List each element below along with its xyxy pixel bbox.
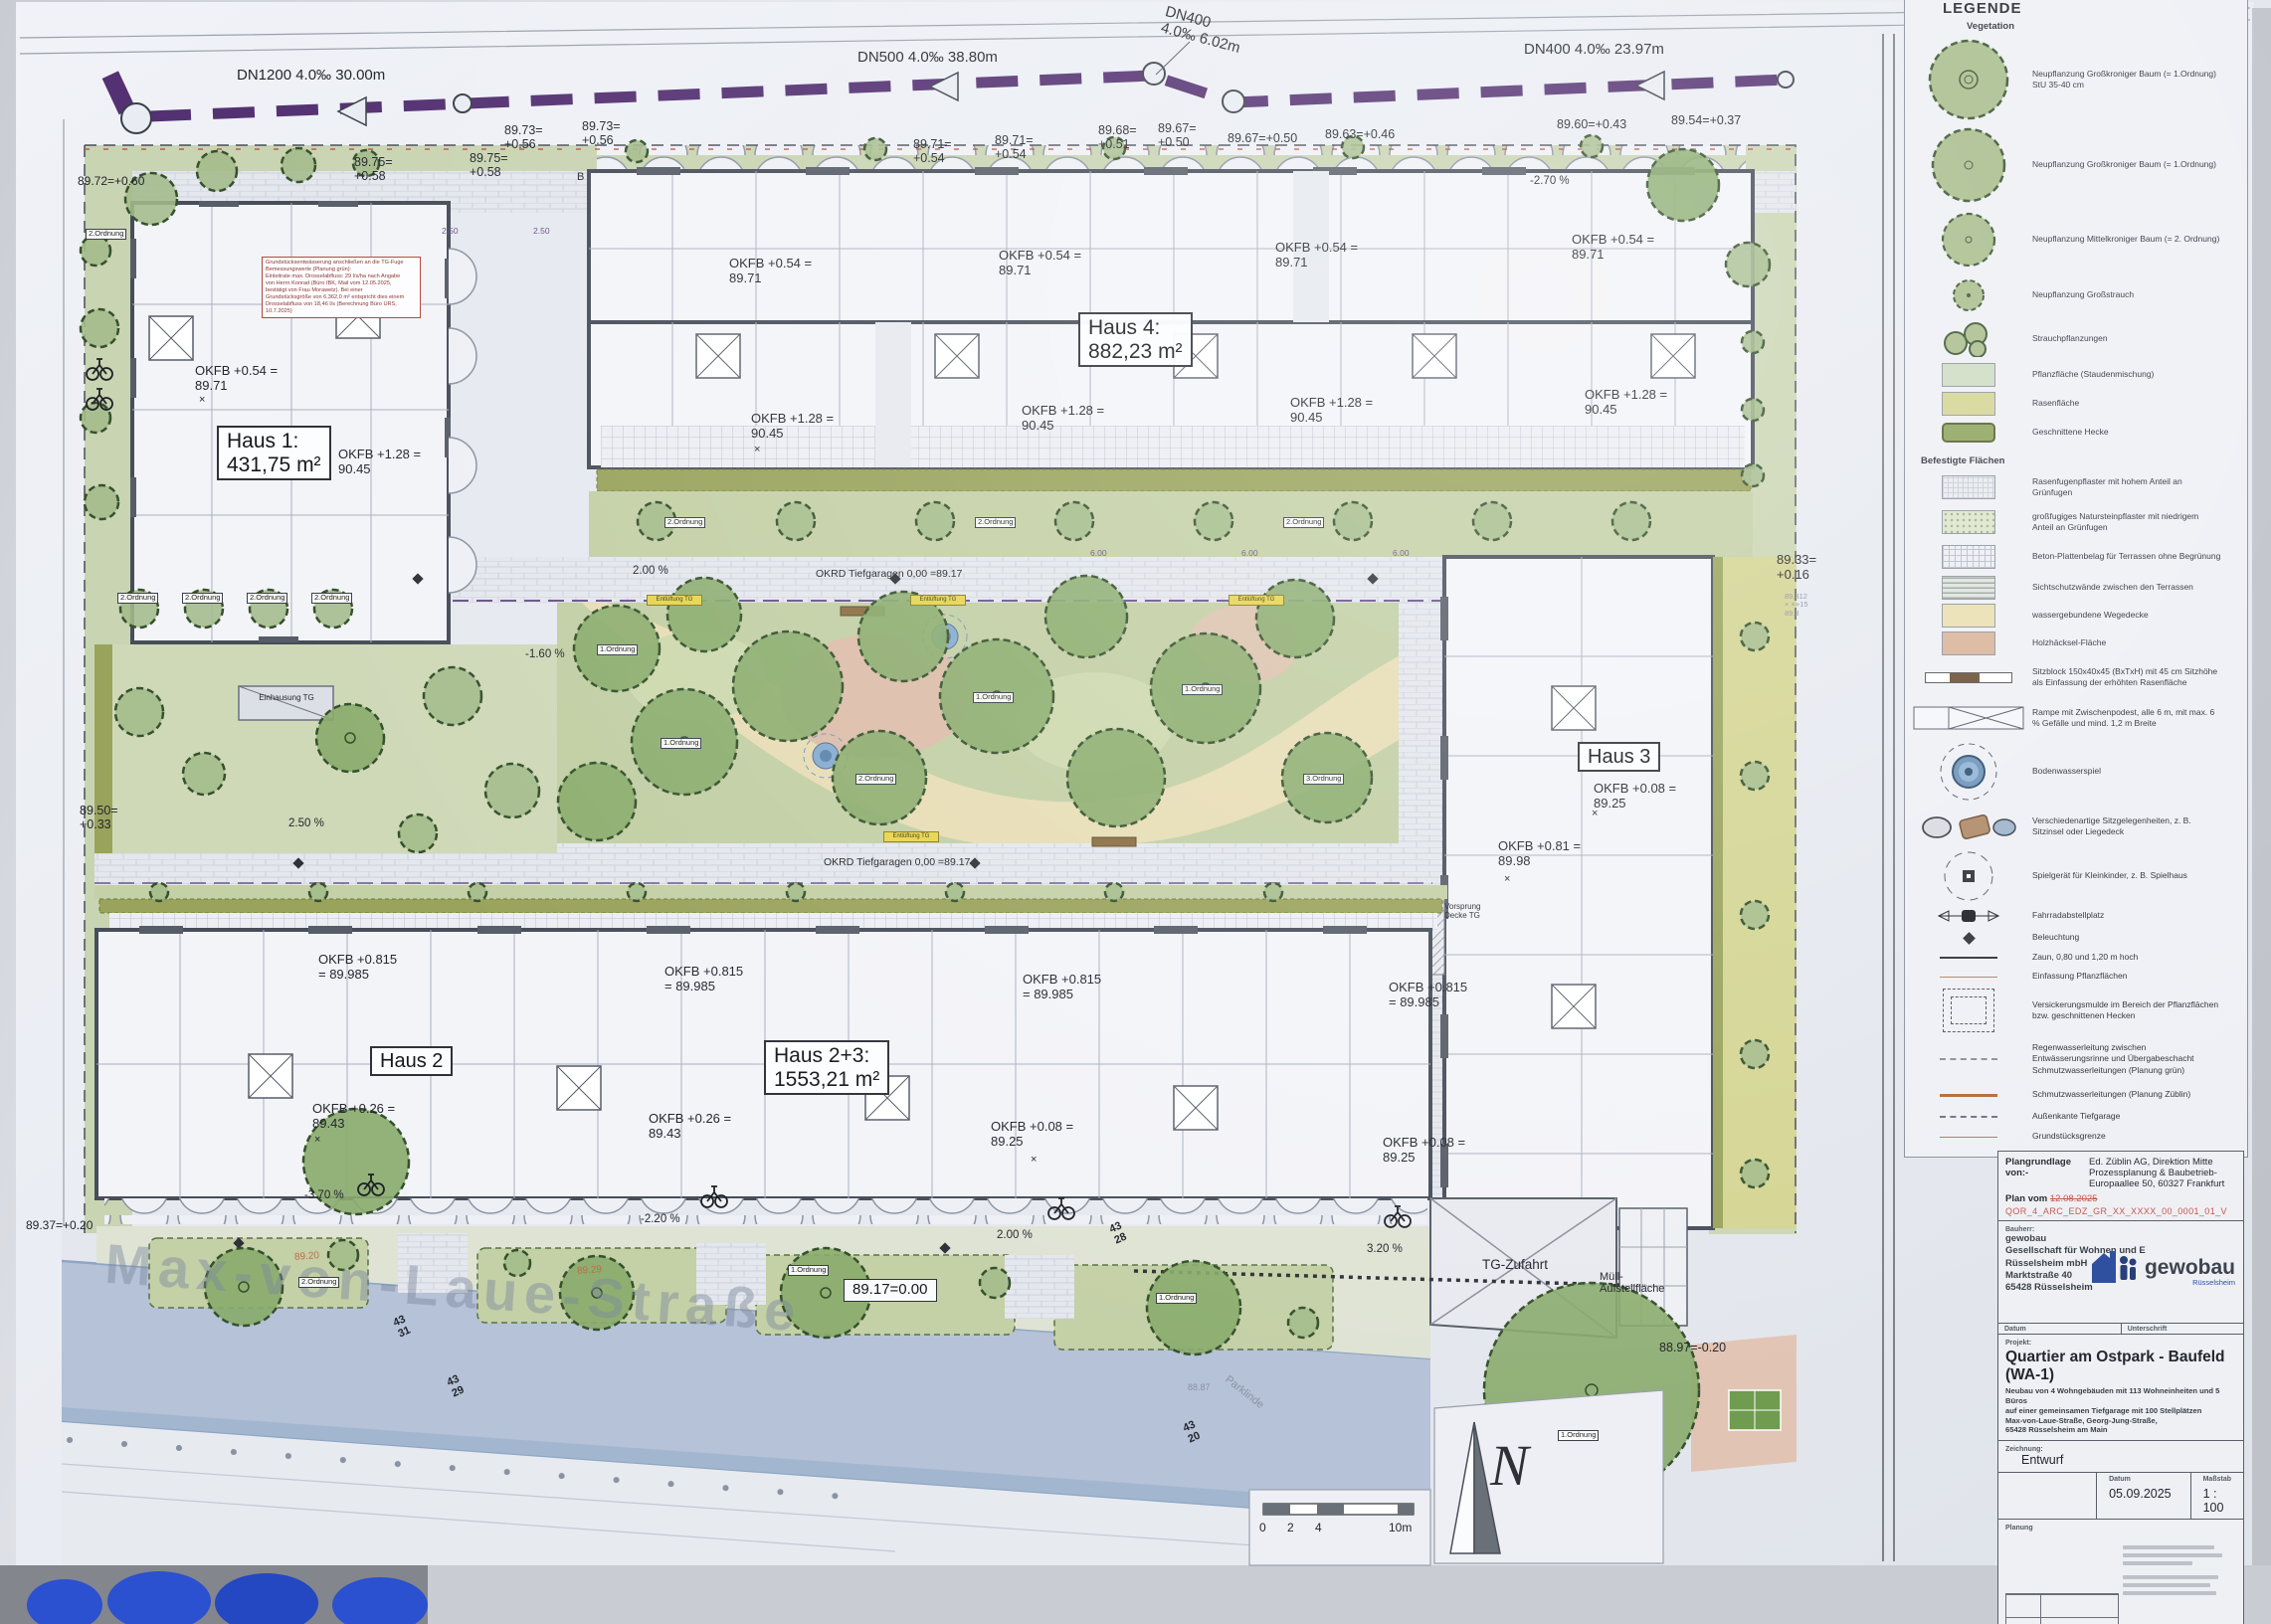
- photographed-site-plan: DN1200 4.0‰ 30.00m DN500 4.0‰ 38.80m DN4…: [0, 0, 2271, 1624]
- legend-item: Strauchpflanzungen: [1905, 318, 2247, 360]
- okfb-label: OKFB +0.54 = 89.71: [1572, 233, 1654, 262]
- versickerung-icon: [1905, 989, 2032, 1032]
- legend-item: Grundstücksgrenze: [1905, 1127, 2247, 1147]
- bauherr-label: Bauherr:: [2005, 1226, 2236, 1233]
- survey-x-mark: ×: [199, 394, 205, 406]
- elevation-label: 89.73= +0.56: [504, 123, 543, 151]
- survey-x-mark: ×: [1592, 808, 1598, 819]
- okfb-label: OKFB +0.54 = 89.71: [729, 257, 812, 285]
- haus2-label: Haus 2: [370, 1046, 453, 1076]
- tg-vent-label: Entlüftung TG: [883, 831, 939, 842]
- survey-x-mark: ×: [1031, 1154, 1037, 1166]
- platten-swatch: [1905, 545, 2032, 569]
- dimension-label: 6.00: [1393, 549, 1410, 559]
- legend-label: Bodenwasserspiel: [2032, 766, 2221, 777]
- legend-label: großfugiges Natursteinpflaster mit niedr…: [2032, 511, 2221, 533]
- slope-label: 2.00 %: [997, 1229, 1033, 1242]
- north-arrow: [1434, 1390, 1663, 1563]
- einfassung-line: [1905, 977, 2032, 978]
- dimension-label: 2.50: [533, 227, 550, 237]
- plan-vom-label: Plan vom: [2005, 1193, 2047, 1204]
- street-elevation-point: 89.29: [577, 1264, 603, 1277]
- elevation-label: 89.54=+0.37: [1671, 113, 1741, 127]
- elevation-label: 89.37=+0.20: [26, 1219, 93, 1232]
- legend-item: Rampe mit Zwischenpodest, alle 6 m, mit …: [1905, 697, 2247, 739]
- pipe-label-dn500: DN500 4.0‰ 38.80m: [857, 50, 998, 67]
- legend-label: Neupflanzung Großkroniger Baum (= 1.Ordn…: [2032, 69, 2221, 90]
- elevation-label: 89.75= +0.58: [470, 151, 508, 179]
- legend-label: Strauchpflanzungen: [2032, 333, 2221, 344]
- tree-xl-icon: [1905, 37, 2032, 122]
- elevation-label: 89.63=+0.46: [1325, 127, 1395, 141]
- legend-section-vegetation: Vegetation: [1967, 21, 2247, 32]
- massstab-value: 1 : 100: [2197, 1485, 2237, 1517]
- legend-label: Sitzblock 150x40x45 (BxTxH) mit 45 cm Si…: [2032, 666, 2221, 688]
- tree-order-tag: 1.Ordnung: [1558, 1430, 1599, 1441]
- holz-swatch: [1905, 632, 2032, 655]
- legend-label: Neupflanzung Großkroniger Baum (= 1.Ordn…: [2032, 159, 2221, 170]
- okfb-label: OKFB +1.28 = 90.45: [1585, 388, 1667, 417]
- legend-label: Außenkante Tiefgarage: [2032, 1111, 2221, 1122]
- legend-item: Beleuchtung: [1905, 928, 2247, 948]
- okfb-label: OKFB +1.28 = 90.45: [1290, 396, 1373, 425]
- haus23-label: Haus 2+3: 1553,21 m²: [764, 1040, 889, 1095]
- gewobau-logo: gewobau Rüsselsheim: [2089, 1247, 2235, 1287]
- okfb-label: OKFB +0.815 = 89.985: [1023, 973, 1101, 1001]
- okfb-label: OKFB +0.54 = 89.71: [999, 249, 1081, 277]
- wegedecke-swatch: [1905, 604, 2032, 628]
- legend-item: Neupflanzung Großkroniger Baum (= 1.Ordn…: [1905, 36, 2247, 123]
- street-elevation-point: 88.87: [1188, 1382, 1211, 1392]
- legend-label: Spielgerät für Kleinkinder, z. B. Spielh…: [2032, 870, 2221, 881]
- okfb-label: OKFB +0.26 = 89.43: [312, 1102, 395, 1131]
- legend-item: Verschiedenartige Sitzgelegenheiten, z. …: [1905, 805, 2247, 848]
- tg-vent-label: Entlüftung TG: [647, 595, 702, 606]
- plan-vom-date: 12.08.2025: [2050, 1193, 2098, 1204]
- pipe-label-dn1200: DN1200 4.0‰ 30.00m: [237, 68, 385, 85]
- survey-x-mark: ×: [1504, 873, 1510, 885]
- legend-label: Rasenfläche: [2032, 398, 2221, 409]
- slope-label: 2.50 %: [288, 817, 324, 830]
- elevation-label: 89.71= +0.54: [995, 133, 1034, 161]
- legend-item: Versickerungsmulde im Bereich der Pflanz…: [1905, 986, 2247, 1035]
- scale-tick-4: 4: [1315, 1522, 1322, 1534]
- hecke-swatch: [1905, 423, 2032, 443]
- okrd-label: OKRD Tiefgaragen 0,00 =89.17: [824, 857, 970, 869]
- title-block: Plangrundlage von:- Ed. Züblin AG, Direk…: [1997, 1152, 2244, 1624]
- legend-label: Verschiedenartige Sitzgelegenheiten, z. …: [2032, 815, 2221, 837]
- projekt-label: Projekt:: [2005, 1340, 2236, 1347]
- section-marker: B: [577, 171, 584, 183]
- schmutzwasser-line: [1905, 1094, 2032, 1097]
- rasen-swatch: [1905, 392, 2032, 416]
- legend-item: Rasenfugenpflaster mit hohem Anteil an G…: [1905, 470, 2247, 504]
- legend-label: Rasenfugenpflaster mit hohem Anteil an G…: [2032, 476, 2221, 498]
- project-title: Quartier am Ostpark - Baufeld (WA-1): [2005, 1349, 2236, 1384]
- okfb-label: OKFB +0.81 = 89.98: [1498, 839, 1581, 868]
- okrd-label: OKRD Tiefgaragen 0,00 =89.17: [816, 569, 962, 581]
- legend-item: Pflanzfläche (Staudenmischung): [1905, 360, 2247, 390]
- titleblock-planung: Planung grün: [1997, 1519, 2244, 1624]
- sichtschutz-swatch: [1905, 576, 2032, 600]
- vorsprung-label: Vorsprung Decke TG: [1444, 903, 1480, 921]
- legend-item: Regenwasserleitung zwischen Entwässerung…: [1905, 1035, 2247, 1083]
- legend-item: großfugiges Natursteinpflaster mit niedr…: [1905, 504, 2247, 540]
- tg-zufahrt-label: TG-Zufahrt: [1482, 1257, 1548, 1272]
- gewobau-city: Rüsselsheim: [2145, 1278, 2235, 1287]
- photo-bottom-strip: [0, 1565, 2271, 1624]
- legend-item: Sitzblock 150x40x45 (BxTxH) mit 45 cm Si…: [1905, 657, 2247, 697]
- legend-item: Einfassung Pflanzflächen: [1905, 968, 2247, 986]
- legend-item: Spielgerät für Kleinkinder, z. B. Spielh…: [1905, 848, 2247, 904]
- tree-m-icon: [1905, 210, 2032, 270]
- scale-tick-0: 0: [1259, 1522, 1266, 1534]
- legend-item: Sichtschutzwände zwischen den Terrassen: [1905, 574, 2247, 602]
- north-letter: N: [1490, 1434, 1529, 1499]
- legend-item: Neupflanzung Großkroniger Baum (= 1.Ordn…: [1905, 123, 2247, 207]
- slope-label: 2.00 %: [633, 565, 668, 578]
- shrubs-icon: [1905, 321, 2032, 357]
- slope-label: -3.70 %: [304, 1189, 344, 1202]
- dimension-label: 6.00: [1090, 549, 1107, 559]
- legend-item: Außenkante Tiefgarage: [1905, 1107, 2247, 1127]
- legend-item: Schmutzwasserleitungen (Planung Züblin): [1905, 1083, 2247, 1107]
- beleuchtung-icon: [1905, 934, 2032, 943]
- drainage-note: Grundstücksentwässerung anschließen an d…: [262, 257, 421, 318]
- zeichnung-label: Zeichnung:: [2005, 1446, 2236, 1453]
- legend-item: Bodenwasserspiel: [1905, 739, 2247, 805]
- slope-label: -1.60 %: [525, 648, 565, 661]
- project-description: Neubau von 4 Wohngebäuden mit 113 Wohnei…: [2005, 1386, 2236, 1435]
- legend-label: Beton-Plattenbelag für Terrassen ohne Be…: [2032, 551, 2221, 562]
- titleblock-bauherr: Bauherr: gewobau Gesellschaft für Wohnen…: [1997, 1220, 2244, 1324]
- legend-label: Zaun, 0,80 und 1,20 m hoch: [2032, 952, 2221, 963]
- okfb-label: OKFB +1.28 = 90.45: [338, 448, 421, 476]
- gewobau-wordmark: gewobau: [2145, 1259, 2235, 1278]
- survey-x-mark: ×: [754, 444, 760, 455]
- legend-label: Holzhäcksel-Fläche: [2032, 637, 2221, 648]
- zeichnung-value: Entwurf: [2021, 1453, 2236, 1467]
- tg-vent-label: Entlüftung TG: [1229, 595, 1284, 606]
- okfb-label: OKFB +0.08 = 89.25: [1383, 1136, 1465, 1165]
- okfb-label: OKFB +1.28 = 90.45: [1022, 404, 1104, 433]
- tree-order-tag: 2.Ordnung: [311, 593, 352, 604]
- slope-label: 3.20 %: [1367, 1243, 1403, 1256]
- legend-label: Pflanzfläche (Staudenmischung): [2032, 369, 2221, 380]
- elevation-label: 89.71= +0.54: [913, 137, 952, 165]
- titleblock-project: Projekt: Quartier am Ostpark - Baufeld (…: [1997, 1334, 2244, 1441]
- pflaster2-swatch: [1905, 510, 2032, 534]
- legend-label: Geschnittene Hecke: [2032, 427, 2221, 438]
- elevation-label: 89.67= +0.50: [1158, 121, 1197, 149]
- regenwasser-line: [1905, 1058, 2032, 1060]
- titleblock-plangrundlage: Plangrundlage von:- Ed. Züblin AG, Direk…: [1997, 1151, 2244, 1222]
- legend-label: Neupflanzung Mittelkroniger Baum (= 2. O…: [2032, 234, 2221, 245]
- tg-vent-label: Entlüftung TG: [910, 595, 966, 606]
- elevation-label: 89.67=+0.50: [1228, 131, 1297, 145]
- elevation-label: 89.60=+0.43: [1557, 117, 1626, 131]
- tree-order-tag: 3.Ordnung: [1303, 774, 1344, 785]
- tree-order-tag: 2.Ordnung: [975, 517, 1016, 528]
- legend-label: Beleuchtung: [2032, 932, 2221, 943]
- scale-tick-2: 2: [1287, 1522, 1294, 1534]
- unterschrift-label: Unterschrift: [2121, 1324, 2174, 1335]
- tiefgarage-line: [1905, 1116, 2032, 1118]
- tree-order-tag: 1.Ordnung: [1156, 1293, 1197, 1304]
- okfb-label: OKFB +0.815 = 89.985: [1389, 981, 1467, 1009]
- tree-order-tag: 2.Ordnung: [298, 1277, 339, 1288]
- tree-order-tag: 2.Ordnung: [247, 593, 287, 604]
- slope-label: -2.20 %: [641, 1213, 680, 1226]
- legend-item: Neupflanzung Mittelkroniger Baum (= 2. O…: [1905, 207, 2247, 272]
- grenze-line: [1905, 1137, 2032, 1138]
- stauden-swatch: [1905, 363, 2032, 387]
- legend-label: Grundstücksgrenze: [2032, 1131, 2221, 1142]
- tree-order-tag: 2.Ordnung: [855, 774, 896, 785]
- legend-title: LEGENDE: [1943, 0, 2247, 17]
- legend-label: Regenwasserleitung zwischen Entwässerung…: [2032, 1042, 2221, 1075]
- elevation-small-label: 89.312 × ×+15 89.3: [1785, 593, 1808, 618]
- dimension-label: 2.50: [442, 227, 459, 237]
- scale-tick-10m: 10m: [1389, 1522, 1412, 1534]
- haus4-label: Haus 4: 882,23 m²: [1078, 312, 1193, 367]
- slope-label: -2.70 %: [1530, 175, 1570, 188]
- elevation-label: 89.68= +0.51: [1098, 123, 1137, 151]
- revision-table: [2005, 1593, 2119, 1624]
- sitzinseln-icon: [1905, 807, 2032, 846]
- okfb-label: OKFB +0.815 = 89.985: [664, 965, 743, 993]
- legend-label: Fahrradabstellplatz: [2032, 910, 2221, 921]
- legend-panel: LEGENDE Vegetation Neupflanzung Großkron…: [1904, 0, 2248, 1158]
- okfb-label: OKFB +0.26 = 89.43: [649, 1112, 731, 1141]
- legend-item: Geschnittene Hecke: [1905, 418, 2247, 448]
- dimension-label: 6.00: [1241, 549, 1258, 559]
- tree-order-tag: 1.Ordnung: [661, 738, 701, 749]
- legend-label: Einfassung Pflanzflächen: [2032, 971, 2221, 982]
- legend-item: Rasenfläche: [1905, 390, 2247, 418]
- plangrundlage-label: Plangrundlage von:-: [2005, 1157, 2083, 1189]
- legend-label: wassergebundene Wegedecke: [2032, 610, 2221, 621]
- street-elevation-point: 89.20: [294, 1250, 320, 1263]
- legend-label: Sichtschutzwände zwischen den Terrassen: [2032, 582, 2221, 593]
- fahrrad-icon: [1905, 908, 2032, 924]
- tree-l-icon: [1905, 125, 2032, 205]
- spielgeraet-icon: [1905, 849, 2032, 903]
- legend-label: Rampe mit Zwischenpodest, alle 6 m, mit …: [2032, 707, 2221, 729]
- planung-label: Planung: [2005, 1525, 2236, 1532]
- plangrundlage-value: Ed. Züblin AG, Direktion Mitte Prozesspl…: [2089, 1157, 2224, 1189]
- datum-value: 05.09.2025: [2103, 1485, 2184, 1503]
- gewobau-house-icon: [2089, 1247, 2139, 1287]
- tree-order-tag: 2.Ordnung: [86, 229, 126, 240]
- tree-order-tag: 2.Ordnung: [664, 517, 705, 528]
- titleblock-zeichnung: Zeichnung: Entwurf: [1997, 1440, 2244, 1473]
- elevation-label: 89.73= +0.56: [582, 119, 621, 147]
- tree-order-tag: 1.Ordnung: [788, 1265, 829, 1276]
- sitzblock-icon: [1905, 672, 2032, 683]
- haus3-label: Haus 3: [1578, 742, 1660, 772]
- elevation-label: 88.97=-0.20: [1659, 1341, 1726, 1354]
- massstab-label: Maßstab: [2197, 1474, 2237, 1485]
- okfb-label: OKFB +1.28 = 90.45: [751, 412, 834, 441]
- legend-item: Beton-Plattenbelag für Terrassen ohne Be…: [1905, 540, 2247, 574]
- tree-order-tag: 2.Ordnung: [117, 593, 158, 604]
- legend-item: Zaun, 0,80 und 1,20 m hoch: [1905, 948, 2247, 968]
- legend-item: Fahrradabstellplatz: [1905, 904, 2247, 928]
- tree-order-tag: 2.Ordnung: [1283, 517, 1324, 528]
- legend-label: Neupflanzung Großstrauch: [2032, 289, 2221, 300]
- einhausung-label: Einhausung TG: [247, 694, 326, 703]
- plan-code: QOR_4_ARC_EDZ_GR_XX_XXXX_00_0001_01_V: [2005, 1206, 2236, 1216]
- tree-s-icon: [1905, 276, 2032, 314]
- okfb-label: OKFB +0.54 = 89.71: [195, 364, 278, 393]
- pipe-label-dn400b: DN400 4.0‰ 23.97m: [1524, 42, 1664, 59]
- tree-order-tag: 2.Ordnung: [182, 593, 223, 604]
- legend-item: Neupflanzung Großstrauch: [1905, 272, 2247, 318]
- pflaster1-swatch: [1905, 475, 2032, 499]
- legend-item: Holzhäcksel-Fläche: [1905, 630, 2247, 657]
- tree-order-tag: 1.Ordnung: [597, 644, 638, 655]
- wasserspiel-icon: [1905, 741, 2032, 803]
- elevation-label: 89.33= +0.16: [1777, 553, 1816, 582]
- legend-section-paved: Befestigte Flächen: [1921, 455, 2247, 466]
- elevation-label: 89.50= +0.33: [80, 804, 118, 831]
- okfb-label: OKFB +0.54 = 89.71: [1275, 241, 1358, 270]
- survey-x-mark: ×: [314, 1134, 320, 1146]
- legend-label: Versickerungsmulde im Bereich der Pflanz…: [2032, 999, 2221, 1021]
- legend-label: Schmutzwasserleitungen (Planung Züblin): [2032, 1089, 2221, 1100]
- tree-order-tag: 1.Ordnung: [973, 692, 1014, 703]
- okfb-label: OKFB +0.08 = 89.25: [1594, 782, 1676, 811]
- elevation-label: 89.75= +0.58: [354, 155, 393, 183]
- haus1-label: Haus 1: 431,75 m²: [217, 426, 331, 480]
- datum-label: Datum: [1998, 1324, 2121, 1335]
- okfb-label: OKFB +0.08 = 89.25: [991, 1120, 1073, 1149]
- rampe-icon: [1905, 703, 2032, 733]
- zero-level-label: 89.17=0.00: [844, 1279, 937, 1302]
- haus3-building: [1417, 557, 1797, 1228]
- titleblock-date-scale: Datum 05.09.2025 Maßstab 1 : 100: [1997, 1471, 2244, 1520]
- muell-label: Müll- Aufstellfläche: [1600, 1271, 1664, 1296]
- datum-label2: Datum: [2103, 1474, 2184, 1485]
- zaun-line: [1905, 957, 2032, 959]
- legend-item: wassergebundene Wegedecke: [1905, 602, 2247, 630]
- elevation-label: 89.72=+0.60: [78, 175, 144, 188]
- okfb-label: OKFB +0.815 = 89.985: [318, 953, 397, 982]
- tree-order-tag: 1.Ordnung: [1182, 684, 1223, 695]
